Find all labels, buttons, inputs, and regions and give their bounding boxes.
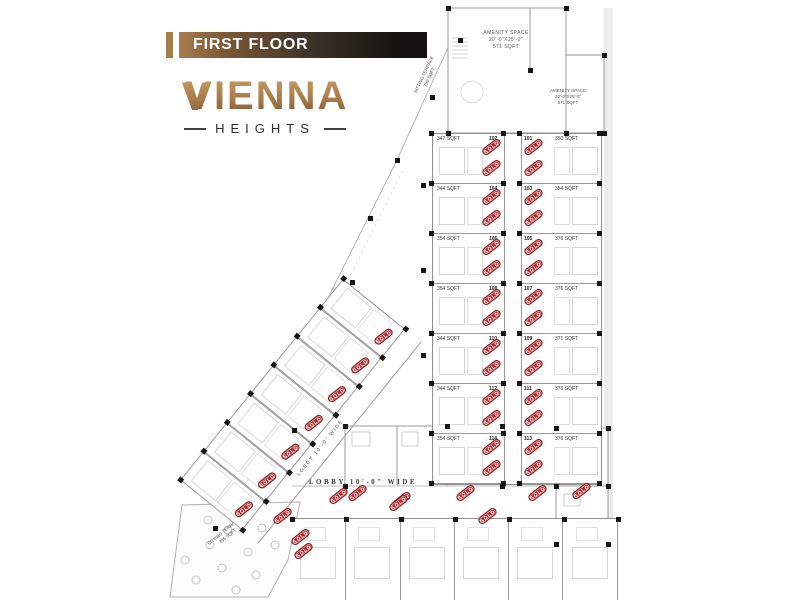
column-marker xyxy=(517,181,522,186)
column-marker xyxy=(517,231,522,236)
column-marker xyxy=(500,484,505,489)
unit-number: 107 xyxy=(524,286,532,292)
unit-sqft-label: 344 SQFT xyxy=(437,186,460,192)
column-marker xyxy=(517,431,522,436)
unit-sqft-label: 354 SQFT xyxy=(555,186,578,192)
column-marker xyxy=(597,281,602,286)
column-marker xyxy=(429,481,434,486)
column-marker xyxy=(597,181,602,186)
column-marker xyxy=(343,424,348,429)
bottom-unit xyxy=(509,519,563,600)
unit-number: 111 xyxy=(524,386,532,392)
column-marker xyxy=(344,517,349,522)
column-marker xyxy=(554,426,559,431)
column-marker xyxy=(395,158,400,163)
unit-row: 344 SQFT110109371 SQFTSOLDSOLDSOLDSOLD xyxy=(433,334,601,384)
column-marker xyxy=(446,131,451,136)
unit-row: 344 SQFT104103354 SQFTSOLDSOLDSOLDSOLD xyxy=(433,184,601,234)
column-marker xyxy=(517,131,522,136)
unit-sqft-label: 347 SQFT xyxy=(437,136,460,142)
unit-number: 109 xyxy=(524,336,532,342)
column-marker xyxy=(501,331,506,336)
column-marker xyxy=(528,68,533,73)
column-marker xyxy=(445,424,450,429)
column-marker xyxy=(500,424,505,429)
column-marker xyxy=(421,268,426,273)
column-marker xyxy=(597,381,602,386)
unit-row: 344 SQFT112111376 SQFTSOLDSOLDSOLDSOLD xyxy=(433,384,601,434)
column-marker xyxy=(430,95,435,100)
unit-sqft-label: 376 SQFT xyxy=(555,386,578,392)
unit-number: 113 xyxy=(524,436,532,442)
floor-plan: AMENITY SPACE 20'-0"X25'-0" 571 SQFT AME… xyxy=(0,0,800,600)
unit-sqft-label: 350 SQFT xyxy=(555,136,578,142)
unit-sqft-label: 354 SQFT xyxy=(437,236,460,242)
bottom-unit xyxy=(401,519,455,600)
unit-row: 354 SQFT108107376 SQFTSOLDSOLDSOLDSOLD xyxy=(433,284,601,334)
amenity2-line3: 571 SQFT xyxy=(538,100,598,106)
column-marker xyxy=(399,517,404,522)
column-marker xyxy=(429,231,434,236)
bottom-unit-row xyxy=(292,518,618,600)
column-marker xyxy=(501,381,506,386)
unit-sqft-label: 376 SQFT xyxy=(555,236,578,242)
amenity-space-label-2: AMENITY SPACE 20'-0"X25'-0" 571 SQFT xyxy=(538,88,598,106)
amenity-space-label: AMENITY SPACE 20'-0"X25'-0" 571 SQFT xyxy=(458,30,554,50)
column-marker xyxy=(290,517,295,522)
column-marker xyxy=(213,526,218,531)
column-marker xyxy=(564,6,569,11)
column-marker xyxy=(517,481,522,486)
plan-outline-svg xyxy=(0,0,800,600)
column-marker xyxy=(429,181,434,186)
unit-number: 105 xyxy=(524,236,532,242)
column-marker xyxy=(606,426,611,431)
column-marker xyxy=(554,484,559,489)
column-marker xyxy=(606,542,611,547)
column-marker xyxy=(602,131,607,136)
unit-sqft-label: 354 SQFT xyxy=(437,436,460,442)
column-marker xyxy=(554,542,559,547)
unit-sqft-label: 371 SQFT xyxy=(555,336,578,342)
column-marker xyxy=(429,131,434,136)
column-marker xyxy=(458,38,463,43)
unit-row: 347 SQFT102101350 SQFTSOLDSOLDSOLDSOLD xyxy=(433,134,601,184)
unit-number: 103 xyxy=(524,186,532,192)
column-marker xyxy=(602,53,607,58)
column-marker xyxy=(421,353,426,358)
column-marker xyxy=(421,183,426,188)
column-marker xyxy=(429,281,434,286)
column-marker xyxy=(562,517,567,522)
unit-sqft-label: 354 SQFT xyxy=(437,286,460,292)
column-marker xyxy=(597,231,602,236)
amenity-line3: 571 SQFT xyxy=(458,44,554,51)
column-marker xyxy=(453,517,458,522)
column-marker xyxy=(429,331,434,336)
column-marker xyxy=(597,481,602,486)
unit-row: 354 SQFT106105376 SQFTSOLDSOLDSOLDSOLD xyxy=(433,234,601,284)
unit-sqft-label: 344 SQFT xyxy=(437,336,460,342)
column-marker xyxy=(616,517,621,522)
column-marker xyxy=(597,431,602,436)
column-marker xyxy=(368,216,373,221)
column-marker xyxy=(564,131,569,136)
column-marker xyxy=(501,431,506,436)
unit-number: 101 xyxy=(524,136,532,142)
column-marker xyxy=(501,231,506,236)
unit-sqft-label: 344 SQFT xyxy=(437,386,460,392)
column-marker xyxy=(606,484,611,489)
column-marker xyxy=(429,431,434,436)
bottom-unit xyxy=(455,519,509,600)
unit-sqft-label: 376 SQFT xyxy=(555,286,578,292)
amenity-line2: 20'-0"X25'-0" xyxy=(458,37,554,44)
column-marker xyxy=(350,280,355,285)
bottom-unit xyxy=(346,519,400,600)
unit-row: 354 SQFT114113376 SQFTSOLDSOLDSOLDSOLD xyxy=(433,434,601,484)
column-marker xyxy=(507,517,512,522)
column-marker xyxy=(517,381,522,386)
column-marker xyxy=(429,381,434,386)
column-marker xyxy=(501,281,506,286)
page: FIRST FLOOR VVIENNA HEIGHTS xyxy=(0,0,800,600)
column-marker xyxy=(446,6,451,11)
bottom-unit xyxy=(564,519,618,600)
column-marker xyxy=(517,281,522,286)
column-marker xyxy=(501,181,506,186)
unit-sqft-label: 376 SQFT xyxy=(555,436,578,442)
column-marker xyxy=(597,331,602,336)
column-marker xyxy=(501,131,506,136)
column-marker xyxy=(292,428,297,433)
column-marker xyxy=(517,331,522,336)
amenity-line1: AMENITY SPACE xyxy=(458,30,554,37)
